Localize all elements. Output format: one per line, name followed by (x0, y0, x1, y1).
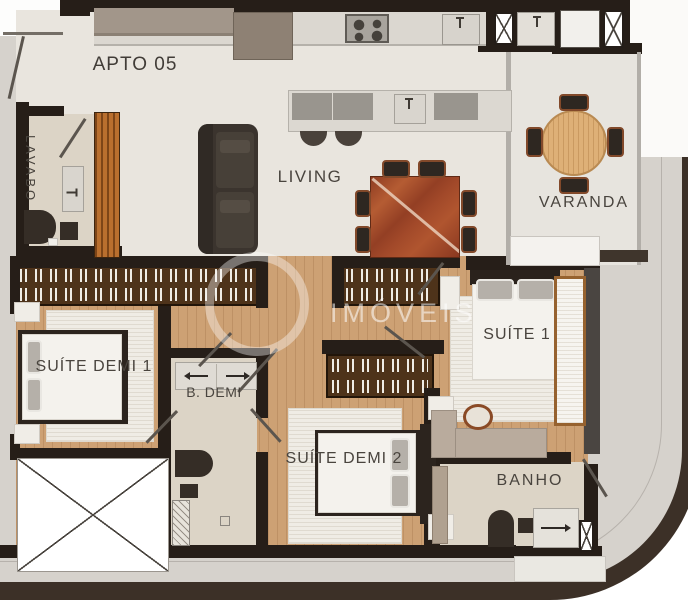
vanity-desk (455, 428, 547, 458)
nightstand (440, 276, 460, 310)
faucet-icon (459, 19, 461, 28)
cabinet-box (518, 518, 534, 533)
duct-shaft (494, 12, 514, 45)
vanity-desk (431, 410, 457, 458)
varanda-chair (607, 127, 624, 157)
room-label-b-demi: B. DEMI (172, 384, 256, 400)
wood-slat-panel (94, 112, 120, 258)
room-label-lavabo: LAVABO (23, 135, 38, 245)
dining-table (370, 176, 460, 258)
varanda-chair (526, 127, 543, 157)
nightstand (14, 302, 40, 322)
entry-edge-line (3, 32, 63, 35)
dining-chair (461, 226, 477, 253)
window-band (584, 268, 600, 454)
wall (60, 0, 90, 16)
faucet-icon (536, 18, 538, 27)
varanda-ledge-edge (596, 250, 648, 262)
dining-chair (382, 160, 410, 178)
vanity-chair (463, 404, 493, 430)
pillow (476, 279, 514, 301)
room-label-living: LIVING (240, 167, 380, 187)
varanda-chair (559, 177, 589, 194)
wall (16, 106, 64, 116)
duct-shaft (603, 10, 624, 48)
toilet (488, 510, 514, 547)
toilet (175, 450, 213, 477)
floorplan: APTO 05 LAVABO LIVING VARANDA SUÍTE DEMI… (0, 0, 688, 600)
dining-chair (355, 226, 371, 253)
floor-drain (220, 516, 230, 526)
shower (172, 500, 190, 546)
wall (16, 256, 268, 268)
mirror-arrow-icon (226, 375, 248, 377)
varanda-glass (637, 52, 641, 265)
shower-arrow-icon (541, 527, 569, 529)
island-cabinet (333, 93, 373, 120)
kitchen-upper-cabinet (94, 8, 234, 36)
dining-chair (418, 160, 446, 178)
island-cabinet (292, 93, 332, 120)
varanda-chair (559, 94, 589, 111)
room-label-banho: BANHO (470, 472, 590, 490)
room-label-varanda: VARANDA (510, 194, 658, 212)
window-bench (554, 276, 586, 426)
varanda-planter (510, 236, 600, 266)
duct-shaft (579, 520, 594, 552)
pillow (26, 378, 42, 412)
cabinet-box (180, 484, 198, 498)
room-label-suite-1: SUÍTE 1 (452, 326, 582, 344)
sofa-pillow (220, 140, 250, 153)
pillow (517, 279, 555, 301)
faucet-icon (408, 100, 410, 109)
void-shaft (17, 458, 169, 572)
fridge-cabinet (233, 12, 293, 60)
wardrobe (14, 264, 266, 306)
cabinet-box (60, 222, 78, 240)
nightstand (14, 424, 40, 444)
sofa-pillow (220, 200, 250, 213)
exterior-ledge (514, 556, 606, 582)
pillow (390, 474, 410, 508)
wall (256, 256, 268, 308)
bin (48, 238, 58, 246)
wall (322, 340, 444, 354)
room-label-suite-demi-2: SUÍTE DEMI 2 (262, 450, 426, 468)
faucet-icon (67, 192, 76, 194)
lavabo-counter (62, 166, 84, 212)
sofa-back (198, 124, 213, 254)
cooktop (345, 14, 389, 43)
island-cabinet (434, 93, 478, 120)
shaft-box (560, 10, 600, 48)
mirror-arrow-icon (186, 375, 208, 377)
varanda-table (541, 110, 607, 176)
wardrobe (326, 354, 434, 398)
room-label-suite-demi-1: SUÍTE DEMI 1 (14, 358, 174, 376)
dining-chair (355, 190, 371, 217)
varanda-glass (506, 52, 511, 265)
unit-label: APTO 05 (60, 54, 210, 76)
dining-chair (461, 190, 477, 217)
banho-vanity (432, 466, 448, 544)
